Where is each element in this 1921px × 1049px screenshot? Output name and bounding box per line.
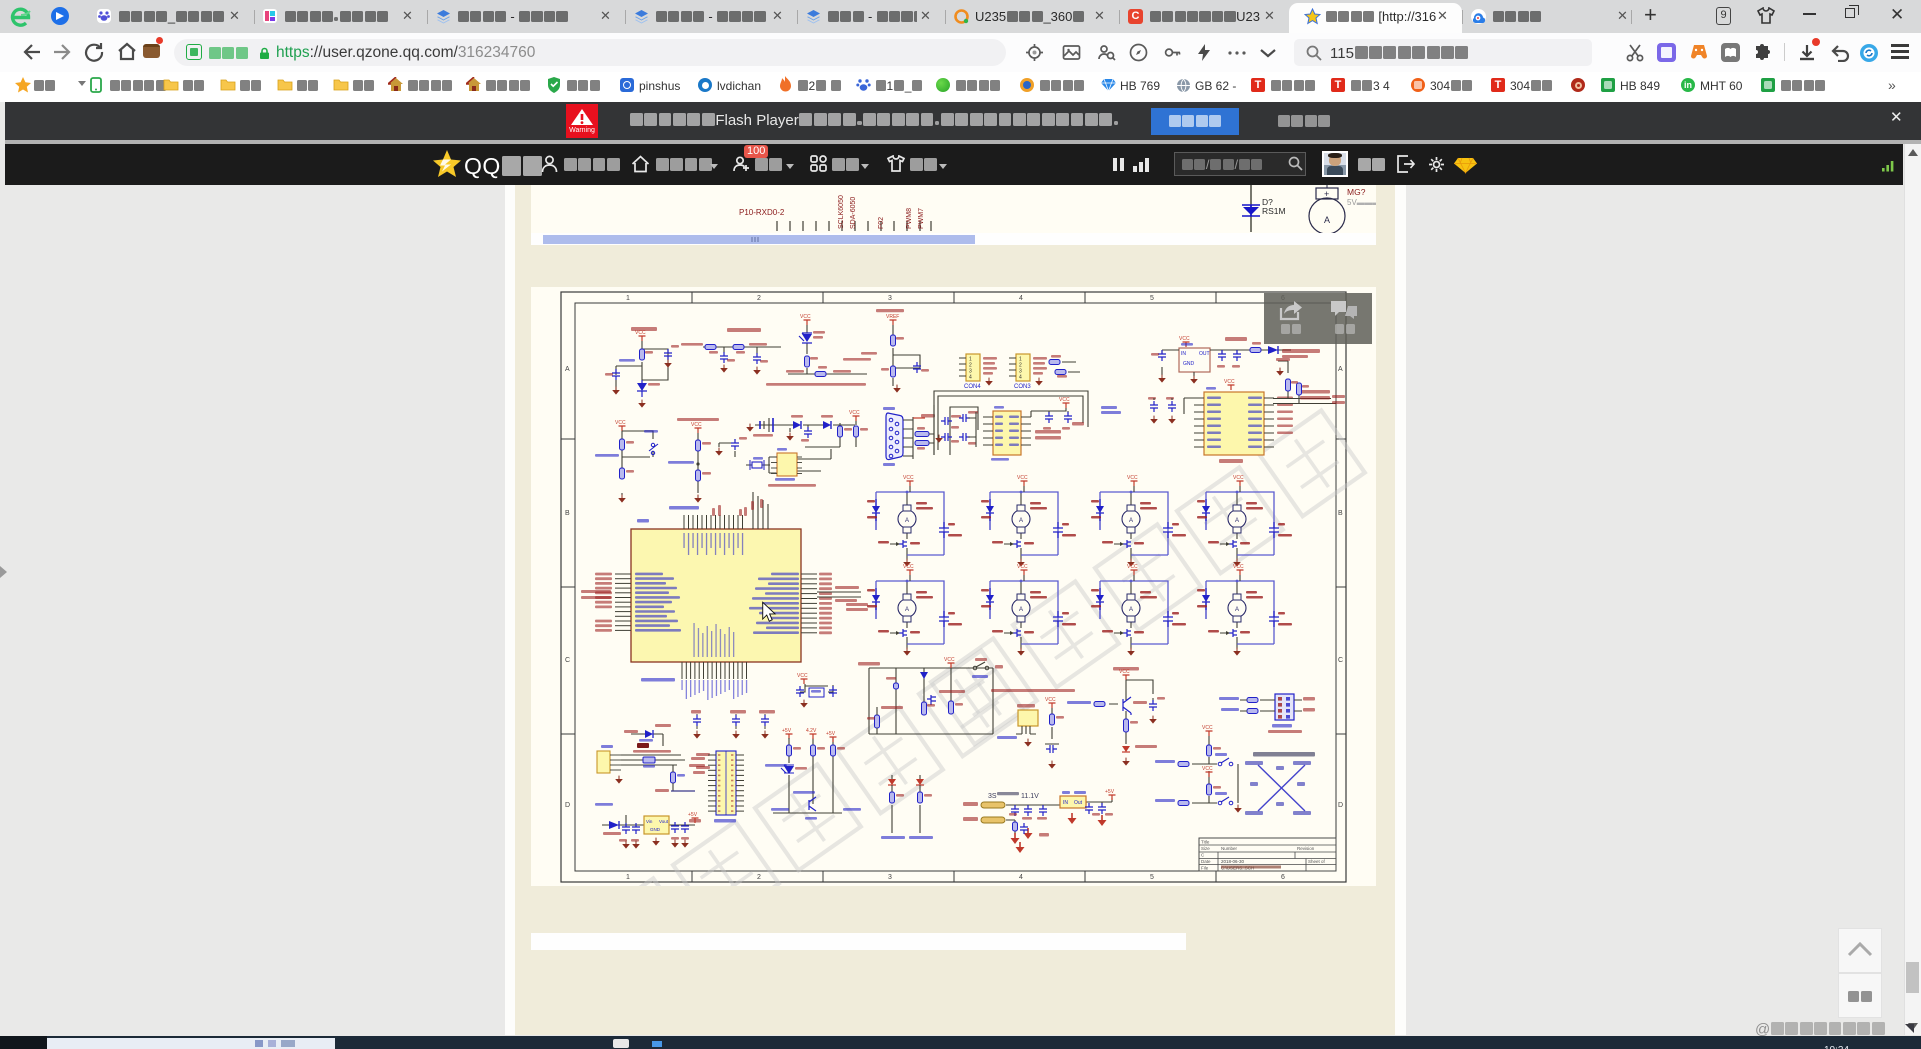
svg-text:5: 5 — [1150, 295, 1154, 302]
svg-text:VCC: VCC — [1045, 697, 1056, 703]
svg-text:VCC: VCC — [797, 673, 808, 679]
svg-text:C: C — [565, 657, 570, 664]
svg-text:VCC: VCC — [1233, 475, 1244, 481]
svg-text:VCC: VCC — [1059, 397, 1070, 403]
svg-text:Vout: Vout — [659, 819, 669, 824]
svg-text:VCC: VCC — [849, 410, 860, 416]
svg-text:VCC: VCC — [635, 330, 646, 336]
svg-text:4.2V: 4.2V — [806, 728, 817, 734]
svg-text:VCC: VCC — [1233, 564, 1244, 570]
svg-text:SCLK6050: SCLK6050 — [838, 195, 845, 229]
svg-text:Revision: Revision — [1297, 846, 1315, 851]
svg-text:Out: Out — [1074, 800, 1083, 806]
svg-text:3: 3 — [888, 295, 892, 302]
svg-text:CON4: CON4 — [964, 384, 981, 390]
svg-text:VCC: VCC — [903, 564, 914, 570]
svg-text:A: A — [1324, 215, 1330, 225]
svg-text:File: File — [1201, 866, 1209, 871]
svg-text:2: 2 — [757, 295, 761, 302]
svg-text:B: B — [1338, 510, 1343, 517]
svg-text:VCC: VCC — [1119, 669, 1130, 675]
svg-text:CON3: CON3 — [1014, 384, 1031, 390]
svg-text:VCC: VCC — [1017, 475, 1028, 481]
svg-text:B: B — [565, 510, 570, 517]
svg-text:VCC: VCC — [691, 422, 702, 428]
svg-text:VCC: VCC — [615, 420, 626, 426]
svg-text:Number: Number — [1221, 846, 1238, 851]
svg-text:PWM7: PWM7 — [918, 208, 925, 229]
svg-text:Date: Date — [1201, 859, 1211, 864]
svg-text:VCC: VCC — [1202, 725, 1213, 731]
svg-text:VCC: VCC — [800, 314, 811, 320]
svg-text:IN: IN — [1063, 800, 1068, 806]
svg-text:Title: Title — [1201, 840, 1210, 845]
svg-text:F02: F02 — [878, 217, 885, 229]
svg-text:MG?: MG? — [1347, 187, 1366, 197]
svg-text:C: C — [1338, 657, 1343, 664]
svg-text:VCC: VCC — [944, 657, 955, 663]
svg-text:+5V: +5V — [782, 728, 792, 734]
svg-text:PWM8: PWM8 — [906, 208, 913, 229]
svg-text:OUT: OUT — [1199, 351, 1210, 357]
svg-text:+5V: +5V — [1105, 789, 1115, 795]
svg-text:VCC: VCC — [1017, 564, 1028, 570]
svg-text:2: 2 — [757, 874, 761, 881]
svg-text:VCC: VCC — [1127, 475, 1138, 481]
svg-text:+: + — [1324, 189, 1329, 199]
svg-text:6: 6 — [1281, 874, 1285, 881]
svg-text:VCC: VCC — [1179, 336, 1190, 342]
svg-text:SDA-6050: SDA-6050 — [850, 197, 857, 229]
svg-text:Vin: Vin — [646, 819, 653, 824]
svg-text:GND: GND — [650, 827, 661, 832]
svg-text:3: 3 — [888, 874, 892, 881]
svg-text:Sheet of: Sheet of — [1308, 859, 1326, 864]
svg-text:RS1M: RS1M — [1262, 206, 1286, 216]
svg-text:VCC: VCC — [903, 475, 914, 481]
svg-text:P10-RXD0-2: P10-RXD0-2 — [739, 208, 785, 217]
svg-text:2018-06-30: 2018-06-30 — [1221, 859, 1245, 864]
svg-text:5: 5 — [1150, 874, 1154, 881]
svg-text:C: C — [1201, 853, 1205, 858]
svg-text:4: 4 — [1019, 295, 1023, 302]
svg-text:4: 4 — [1019, 874, 1023, 881]
svg-text:VCC: VCC — [1127, 564, 1138, 570]
svg-text:+5V: +5V — [688, 812, 698, 818]
svg-text:A: A — [565, 366, 570, 373]
svg-text:4: 4 — [969, 375, 972, 381]
svg-text:Size: Size — [1201, 846, 1210, 851]
svg-text:GND: GND — [1183, 361, 1195, 367]
svg-text:5V▬▬▬: 5V▬▬▬ — [1347, 198, 1376, 207]
svg-text:11.1V: 11.1V — [1021, 793, 1039, 800]
svg-text:+5V: +5V — [826, 731, 836, 737]
svg-text:1: 1 — [626, 874, 630, 881]
svg-text:VCC: VCC — [1224, 379, 1235, 385]
svg-text:D: D — [1338, 802, 1343, 809]
svg-text:4: 4 — [1019, 375, 1022, 381]
svg-text:1: 1 — [626, 295, 630, 302]
svg-text:VREF: VREF — [886, 314, 899, 320]
svg-text:D: D — [565, 802, 570, 809]
svg-text:3S: 3S — [988, 793, 997, 800]
svg-text:A: A — [1338, 366, 1343, 373]
svg-text:VCC: VCC — [1202, 766, 1213, 772]
svg-text:IN: IN — [1181, 351, 1186, 357]
